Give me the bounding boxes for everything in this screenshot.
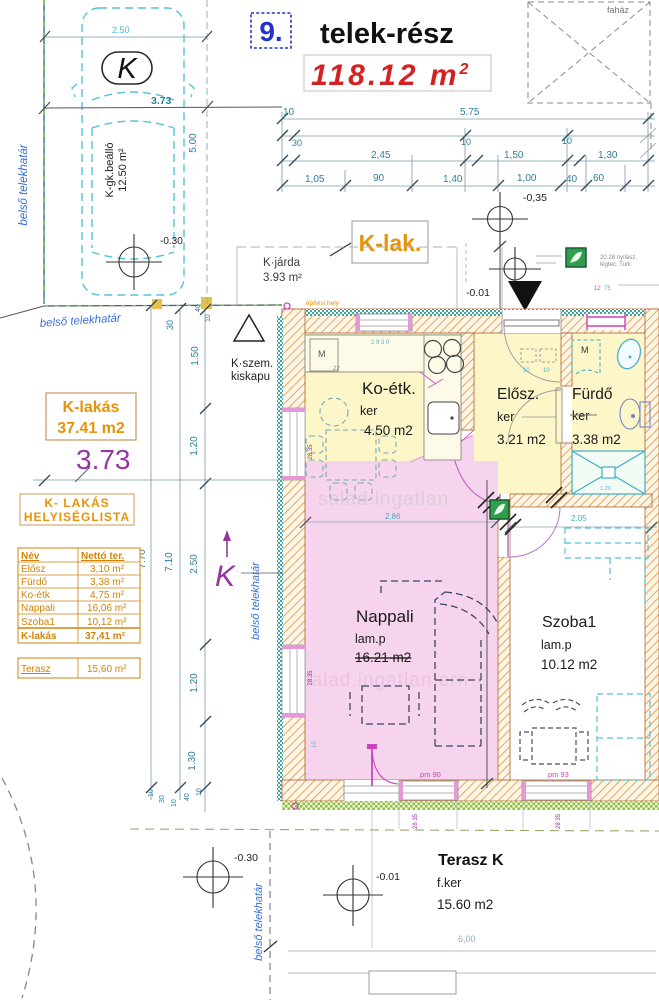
svg-text:2,45: 2,45 [371,150,391,161]
svg-text:30: 30 [165,320,175,330]
svg-text:90: 90 [373,173,385,184]
svg-text:1,30: 1,30 [598,150,618,161]
svg-text:lam.p: lam.p [541,638,572,652]
svg-text:15,60 m²: 15,60 m² [87,664,127,675]
svg-text:M: M [318,349,326,359]
svg-text:Szoba1: Szoba1 [542,614,596,631]
svg-text:10: 10 [148,789,155,797]
svg-text:1,05: 1,05 [305,174,325,185]
svg-text:2.50: 2.50 [112,25,130,35]
svg-text:M: M [581,345,589,355]
svg-text:30: 30 [292,138,302,148]
svg-text:Elősz.: Elősz. [497,386,539,403]
svg-text:28.35: 28.35 [308,670,314,686]
svg-text:15.60 m2: 15.60 m2 [437,897,493,912]
svg-text:1.30: 1.30 [187,751,198,771]
svg-text:belső telekhatár: belső telekhatár [18,143,30,225]
svg-text:4,75 m²: 4,75 m² [90,590,125,601]
svg-text:16,06 m²: 16,06 m² [87,603,127,614]
svg-text:telek-rész: telek-rész [320,18,454,50]
svg-text:1.50: 1.50 [190,346,201,366]
svg-text:Elősz: Elősz [21,564,45,575]
svg-text:K: K [117,53,138,85]
svg-text:40: 40 [195,304,202,312]
svg-text:28 35: 28 35 [556,813,562,829]
svg-text:1,50: 1,50 [504,150,524,161]
svg-text:37.41 m2: 37.41 m2 [57,420,125,437]
svg-text:20.28 nyílász.: 20.28 nyílász. [600,255,637,261]
svg-text:3,38 m²: 3,38 m² [90,577,125,588]
svg-text:lam.p: lam.p [355,632,386,646]
svg-text:kiskapu: kiskapu [231,371,270,383]
svg-text:Terasz K: Terasz K [438,852,504,869]
svg-text:f.ker: f.ker [437,876,461,890]
svg-text:22: 22 [333,366,340,372]
svg-text:K-lakás: K-lakás [21,631,57,642]
svg-text:faház: faház [607,5,630,15]
svg-text:30: 30 [159,795,166,803]
svg-text:K-gk.beálló: K-gk.beálló [104,142,116,197]
svg-text:-0,35: -0,35 [523,192,547,204]
svg-text:Név: Név [21,551,40,562]
svg-text:40: 40 [184,793,191,801]
svg-text:28 35: 28 35 [413,813,419,829]
svg-text:1,00: 1,00 [517,173,537,184]
svg-text:légtec. Turk: légtec. Turk [600,262,632,268]
svg-text:pm 93: pm 93 [548,770,569,779]
svg-text:2 9 3 0: 2 9 3 0 [371,340,390,346]
svg-text:75: 75 [604,286,611,292]
svg-text:10: 10 [523,368,530,374]
svg-text:K- LAKÁS: K- LAKÁS [44,495,109,510]
svg-text:10: 10 [312,741,318,748]
svg-text:9.: 9. [259,16,282,47]
svg-text:3,10 m²: 3,10 m² [90,564,125,575]
svg-text:Nappali: Nappali [21,603,55,614]
svg-text:K: K [215,560,237,593]
svg-text:3.38 m2: 3.38 m2 [572,432,621,447]
svg-text:4.50 m2: 4.50 m2 [364,423,413,438]
svg-text:118.12 m2: 118.12 m2 [311,59,471,92]
svg-text:40: 40 [566,174,578,185]
svg-text:3.93 m²: 3.93 m² [263,272,302,284]
svg-text:Ko-étk.: Ko-étk. [362,379,416,398]
svg-text:építési hely: építési hely [306,300,340,307]
svg-text:1.20: 1.20 [600,486,611,492]
svg-text:K·szem.: K·szem. [231,358,273,370]
svg-text:ealad.ingatlan.ern: ealad.ingatlan.ern [300,670,469,691]
svg-text:10.12 m2: 10.12 m2 [541,657,597,672]
svg-text:12.50 m²: 12.50 m² [117,148,129,192]
svg-text:16.21 m2: 16.21 m2 [355,650,411,665]
svg-text:7.10: 7.10 [164,552,175,572]
svg-text:2.50: 2.50 [189,554,200,574]
svg-text:10,12 m²: 10,12 m² [87,617,127,628]
svg-text:1.20: 1.20 [189,436,200,456]
svg-text:ker: ker [497,410,514,424]
svg-text:3.73: 3.73 [76,444,131,475]
svg-text:10: 10 [196,788,203,796]
svg-text:10: 10 [543,368,550,374]
svg-text:K·járda: K·járda [263,257,301,269]
svg-text:-0.01: -0.01 [466,287,490,299]
svg-text:-0.01: -0.01 [376,871,400,883]
svg-text:ker: ker [360,404,377,418]
svg-text:12: 12 [594,286,601,292]
svg-text:3.21 m2: 3.21 m2 [497,432,546,447]
svg-text:10: 10 [171,799,178,807]
svg-text:60: 60 [593,173,605,184]
svg-text:37,41 m²: 37,41 m² [85,631,126,642]
svg-text:belső telekhatár: belső telekhatár [250,561,262,640]
svg-text:3.73: 3.73 [151,95,172,107]
svg-text:5.00: 5.00 [188,133,199,153]
svg-text:1,40: 1,40 [443,174,463,185]
svg-text:K-lak.: K-lak. [359,230,422,256]
svg-text:K-lakás: K-lakás [63,399,120,416]
svg-text:Fürdő: Fürdő [21,577,48,588]
svg-text:10: 10 [562,136,572,146]
svg-text:5.75: 5.75 [460,107,480,118]
svg-text:Ko-étk: Ko-étk [21,590,51,601]
svg-text:Terasz: Terasz [21,664,50,675]
svg-text:Nettó ter.: Nettó ter. [81,551,125,562]
svg-text:HELYISÉGLISTA: HELYISÉGLISTA [24,509,130,524]
svg-text:Nappali: Nappali [356,607,414,626]
svg-text:-0.30: -0.30 [160,236,183,247]
svg-text:2.05: 2.05 [571,514,587,523]
svg-text:belső telekhatár: belső telekhatár [253,882,265,961]
svg-text:10: 10 [461,137,471,147]
svg-text:6,00: 6,00 [458,934,476,944]
svg-text:10: 10 [283,107,295,118]
svg-text:ker: ker [572,409,589,423]
svg-text:1.20: 1.20 [189,673,200,693]
svg-text:10: 10 [205,314,212,322]
svg-text:2.86: 2.86 [385,512,401,521]
svg-text:28.35: 28.35 [308,444,314,460]
svg-text:pm 90: pm 90 [420,770,441,779]
svg-text:-0.30: -0.30 [234,852,258,864]
svg-text:Szoba1: Szoba1 [21,617,55,628]
svg-text:Fürdő: Fürdő [572,386,613,403]
